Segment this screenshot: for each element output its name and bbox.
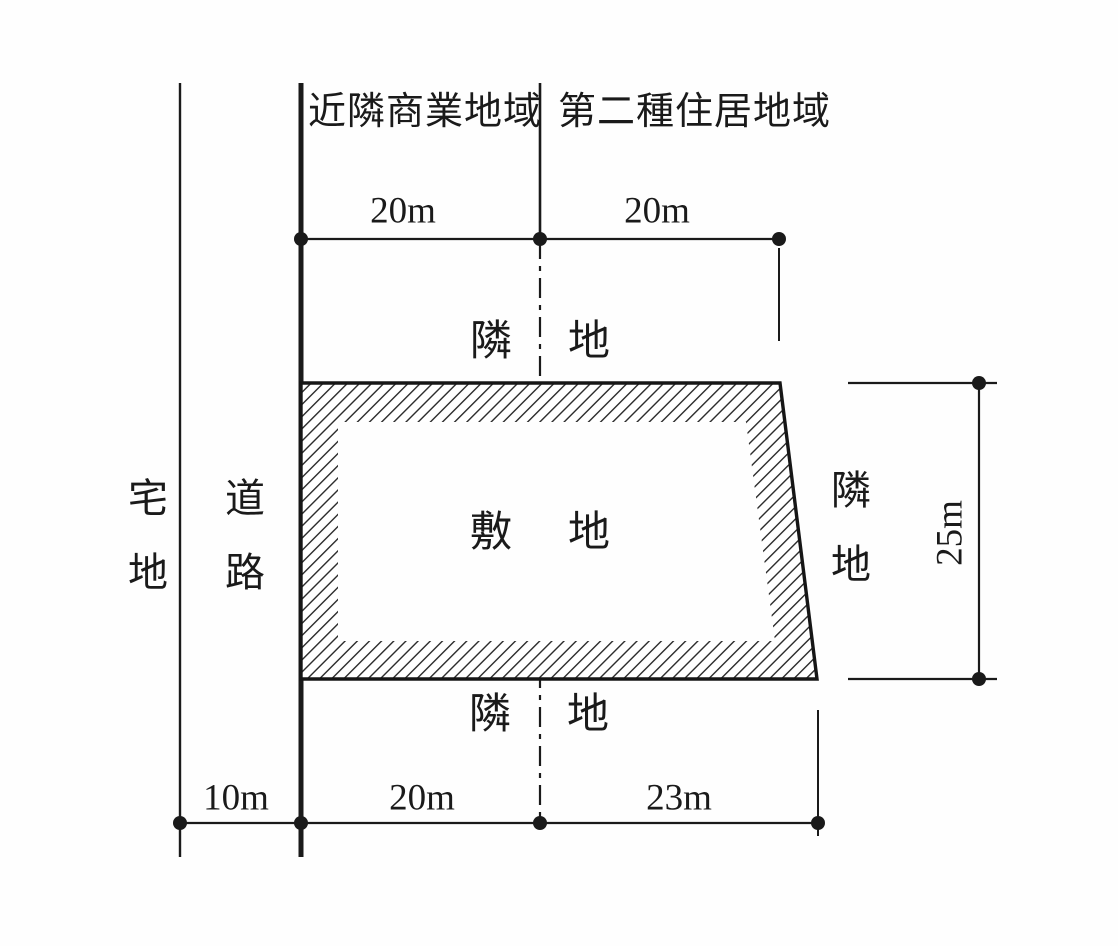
dimension-bottom-left-20m: 20m [389, 780, 455, 817]
dim-dot [533, 232, 547, 246]
dim-dot [972, 672, 986, 686]
residential-land-label: 宅地 [124, 477, 164, 625]
dimension-top-left-20m: 20m [370, 193, 436, 230]
site-label: 敷地 [470, 512, 666, 554]
neighbor-land-label-top: 隣地 [470, 321, 666, 363]
neighbor-land-label-right: 隣地 [827, 469, 867, 617]
dim-dot [772, 232, 786, 246]
dimension-right-25m: 25m [932, 500, 969, 566]
zoning-site-diagram: 近隣商業地域 第二種住居地域 20m 20m 隣地 宅地 道路 敷地 隣地 25… [0, 0, 1118, 946]
site-plan-drawing [0, 0, 1118, 946]
dim-dot [533, 816, 547, 830]
dim-dot [294, 232, 308, 246]
zone-label-neighborhood-commercial: 近隣商業地域 [308, 93, 542, 131]
dimension-bottom-road-10m: 10m [203, 780, 269, 817]
zone-label-category2-residential: 第二種住居地域 [558, 93, 831, 131]
dimension-bottom-right-23m: 23m [646, 780, 712, 817]
road-label: 道路 [221, 477, 261, 625]
dim-dot [294, 816, 308, 830]
dim-dot [173, 816, 187, 830]
dimension-top-right-20m: 20m [624, 193, 690, 230]
dim-dot [972, 376, 986, 390]
neighbor-land-label-bottom: 隣地 [469, 694, 665, 736]
